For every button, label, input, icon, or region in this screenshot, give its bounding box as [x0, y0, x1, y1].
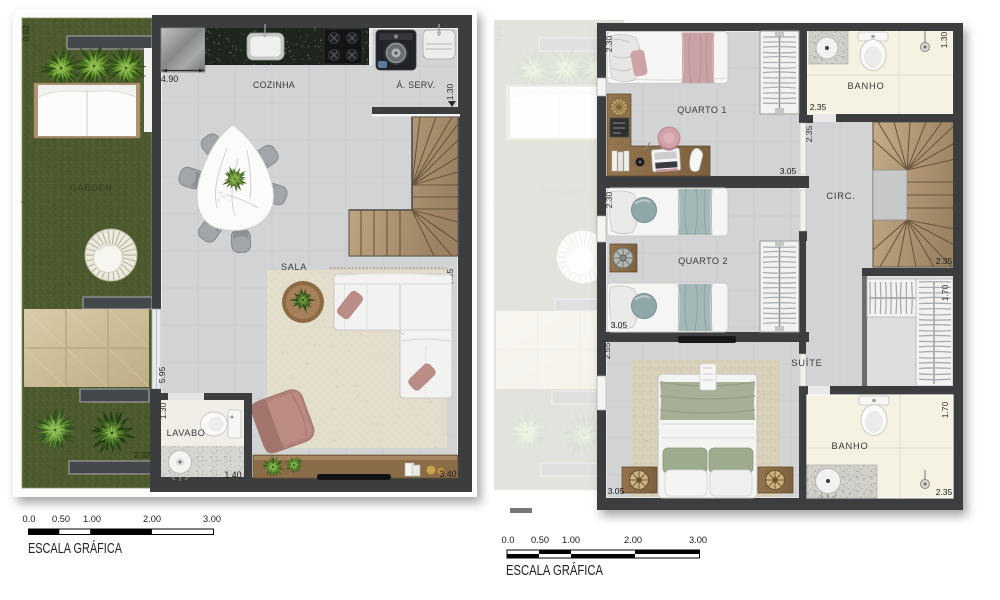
svg-text:QUARTO 2: QUARTO 2 — [678, 256, 728, 266]
svg-text:3.00: 3.00 — [689, 535, 707, 545]
svg-text:1.30: 1.30 — [158, 402, 168, 419]
svg-text:2.30: 2.30 — [604, 191, 614, 208]
svg-text:ESCALA GRÁFICA: ESCALA GRÁFICA — [28, 540, 122, 557]
svg-text:2.30: 2.30 — [604, 35, 614, 52]
svg-text:LAVABO: LAVABO — [167, 428, 206, 438]
svg-text:ESCALA GRÁFICA: ESCALA GRÁFICA — [506, 562, 603, 579]
svg-text:8.82: 8.82 — [21, 24, 31, 41]
svg-text:1.00: 1.00 — [83, 514, 101, 524]
svg-text:1.30: 1.30 — [939, 31, 949, 48]
svg-text:QUARTO 1: QUARTO 1 — [677, 105, 727, 115]
svg-text:COZINHA: COZINHA — [253, 80, 295, 90]
svg-text:SALA: SALA — [281, 262, 307, 272]
svg-text:2.35: 2.35 — [810, 102, 827, 112]
svg-text:3.05: 3.05 — [608, 486, 625, 496]
svg-text:2.32: 2.32 — [134, 450, 151, 460]
svg-text:0.50: 0.50 — [52, 514, 70, 524]
svg-text:BANHO: BANHO — [831, 441, 868, 451]
svg-text:2.35: 2.35 — [936, 487, 953, 497]
svg-text:Á. SERV.: Á. SERV. — [397, 80, 436, 90]
svg-text:1.70: 1.70 — [940, 284, 950, 301]
svg-text:3.00: 3.00 — [203, 514, 221, 524]
svg-text:0.0: 0.0 — [502, 535, 515, 545]
svg-text:2.35: 2.35 — [936, 256, 953, 266]
svg-text:1.40: 1.40 — [224, 470, 241, 480]
svg-text:0.50: 0.50 — [531, 535, 549, 545]
svg-text:3.40: 3.40 — [439, 469, 456, 479]
svg-text:2.55: 2.55 — [602, 342, 612, 359]
svg-text:3.05: 3.05 — [611, 320, 628, 330]
svg-text:GARDEN: GARDEN — [70, 183, 112, 193]
svg-text:4.90: 4.90 — [161, 74, 178, 84]
svg-text:2.00: 2.00 — [143, 514, 161, 524]
svg-text:1.00: 1.00 — [562, 535, 580, 545]
svg-text:1.70: 1.70 — [940, 401, 950, 418]
svg-text:BANHO: BANHO — [847, 81, 884, 91]
svg-text:2.00: 2.00 — [624, 535, 642, 545]
svg-text:1.30: 1.30 — [445, 83, 455, 100]
svg-text:CIRC.: CIRC. — [826, 191, 855, 201]
svg-text:0.0: 0.0 — [23, 514, 36, 524]
svg-text:SUÍTE: SUÍTE — [791, 358, 822, 368]
svg-text:5.95: 5.95 — [157, 366, 167, 383]
svg-text:3.05: 3.05 — [780, 166, 797, 176]
